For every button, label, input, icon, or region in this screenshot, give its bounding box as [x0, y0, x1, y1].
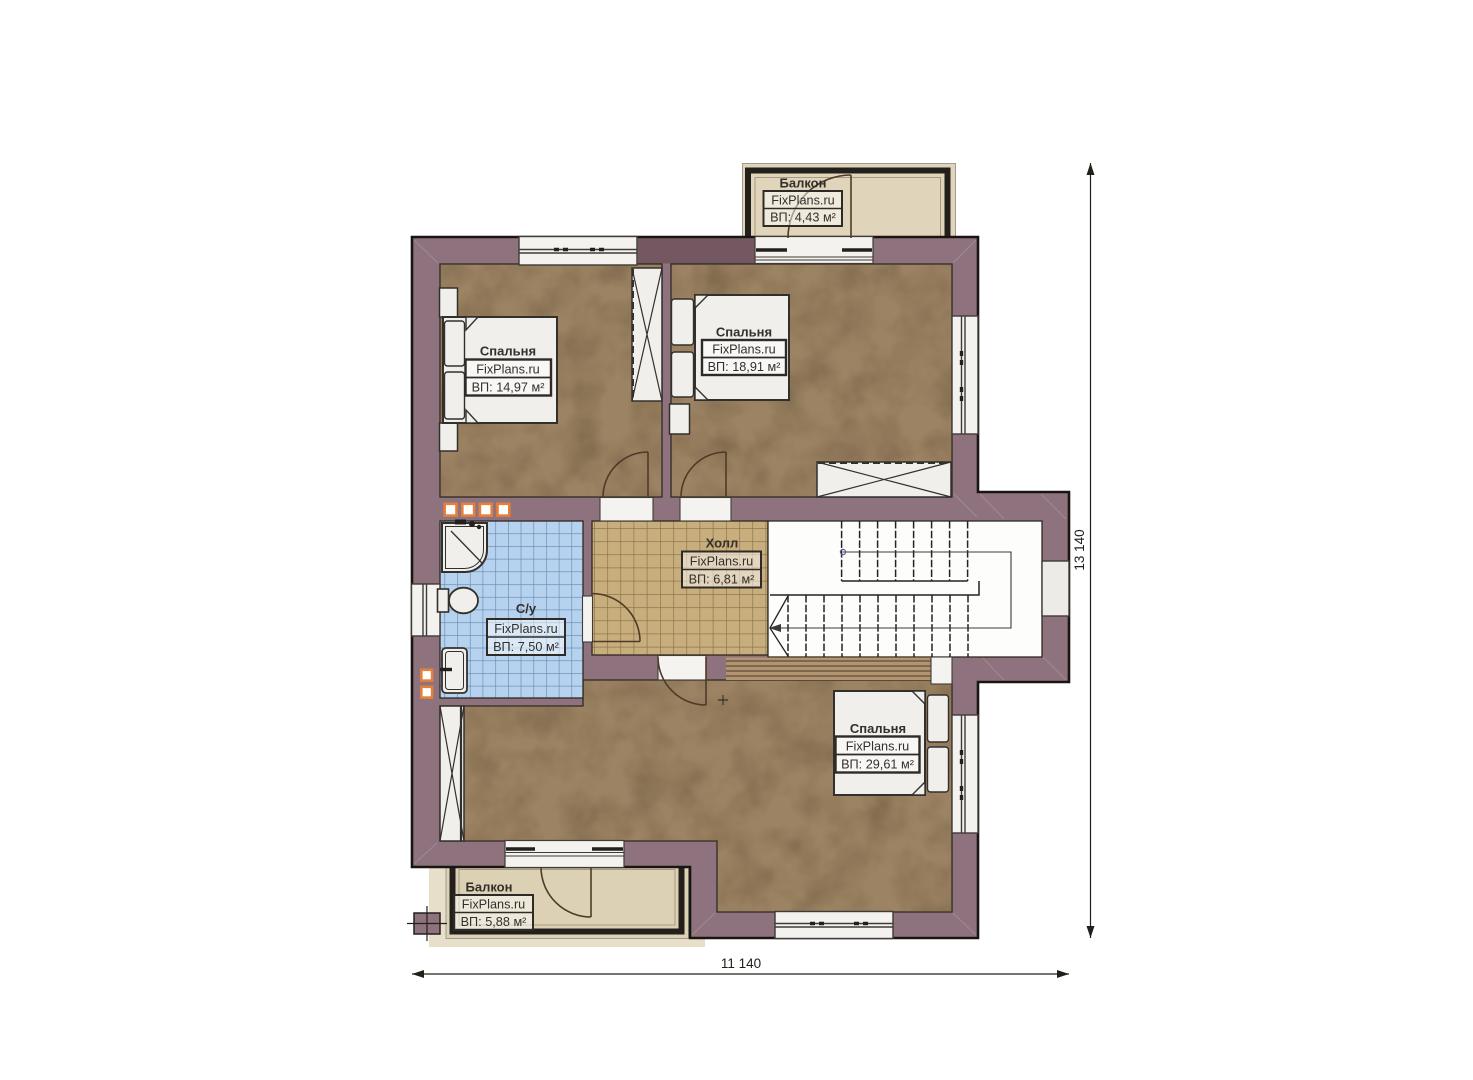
svg-text:ВП: 18,91 м²: ВП: 18,91 м²: [708, 360, 781, 374]
svg-text:ВП: 6,81 м²: ВП: 6,81 м²: [689, 573, 755, 587]
svg-text:Спальня: Спальня: [716, 325, 772, 340]
svg-text:Холл: Холл: [706, 536, 739, 551]
svg-text:ВП: 7,50 м²: ВП: 7,50 м²: [493, 640, 559, 654]
svg-text:ВП: 4,43 м²: ВП: 4,43 м²: [770, 211, 836, 225]
svg-text:FixPlans.ru: FixPlans.ru: [846, 740, 909, 754]
svg-text:Спальня: Спальня: [850, 721, 906, 736]
svg-text:Балкон: Балкон: [780, 176, 827, 191]
svg-text:FixPlans.ru: FixPlans.ru: [494, 622, 557, 636]
svg-text:13 140: 13 140: [1072, 529, 1087, 570]
svg-text:FixPlans.ru: FixPlans.ru: [462, 898, 525, 912]
svg-text:Балкон: Балкон: [466, 880, 513, 895]
svg-text:FixPlans.ru: FixPlans.ru: [712, 343, 775, 357]
svg-text:ВП: 29,61 м²: ВП: 29,61 м²: [841, 758, 914, 772]
svg-text:11 140: 11 140: [721, 956, 761, 971]
svg-text:FixPlans.ru: FixPlans.ru: [690, 555, 753, 569]
svg-text:ВП: 14,97 м²: ВП: 14,97 м²: [472, 381, 545, 395]
svg-text:С/у: С/у: [516, 601, 537, 616]
svg-text:Спальня: Спальня: [480, 344, 536, 359]
svg-text:FixPlans.ru: FixPlans.ru: [476, 363, 539, 377]
svg-text:ВП: 5,88 м²: ВП: 5,88 м²: [461, 915, 527, 929]
svg-text:FixPlans.ru: FixPlans.ru: [771, 194, 834, 208]
